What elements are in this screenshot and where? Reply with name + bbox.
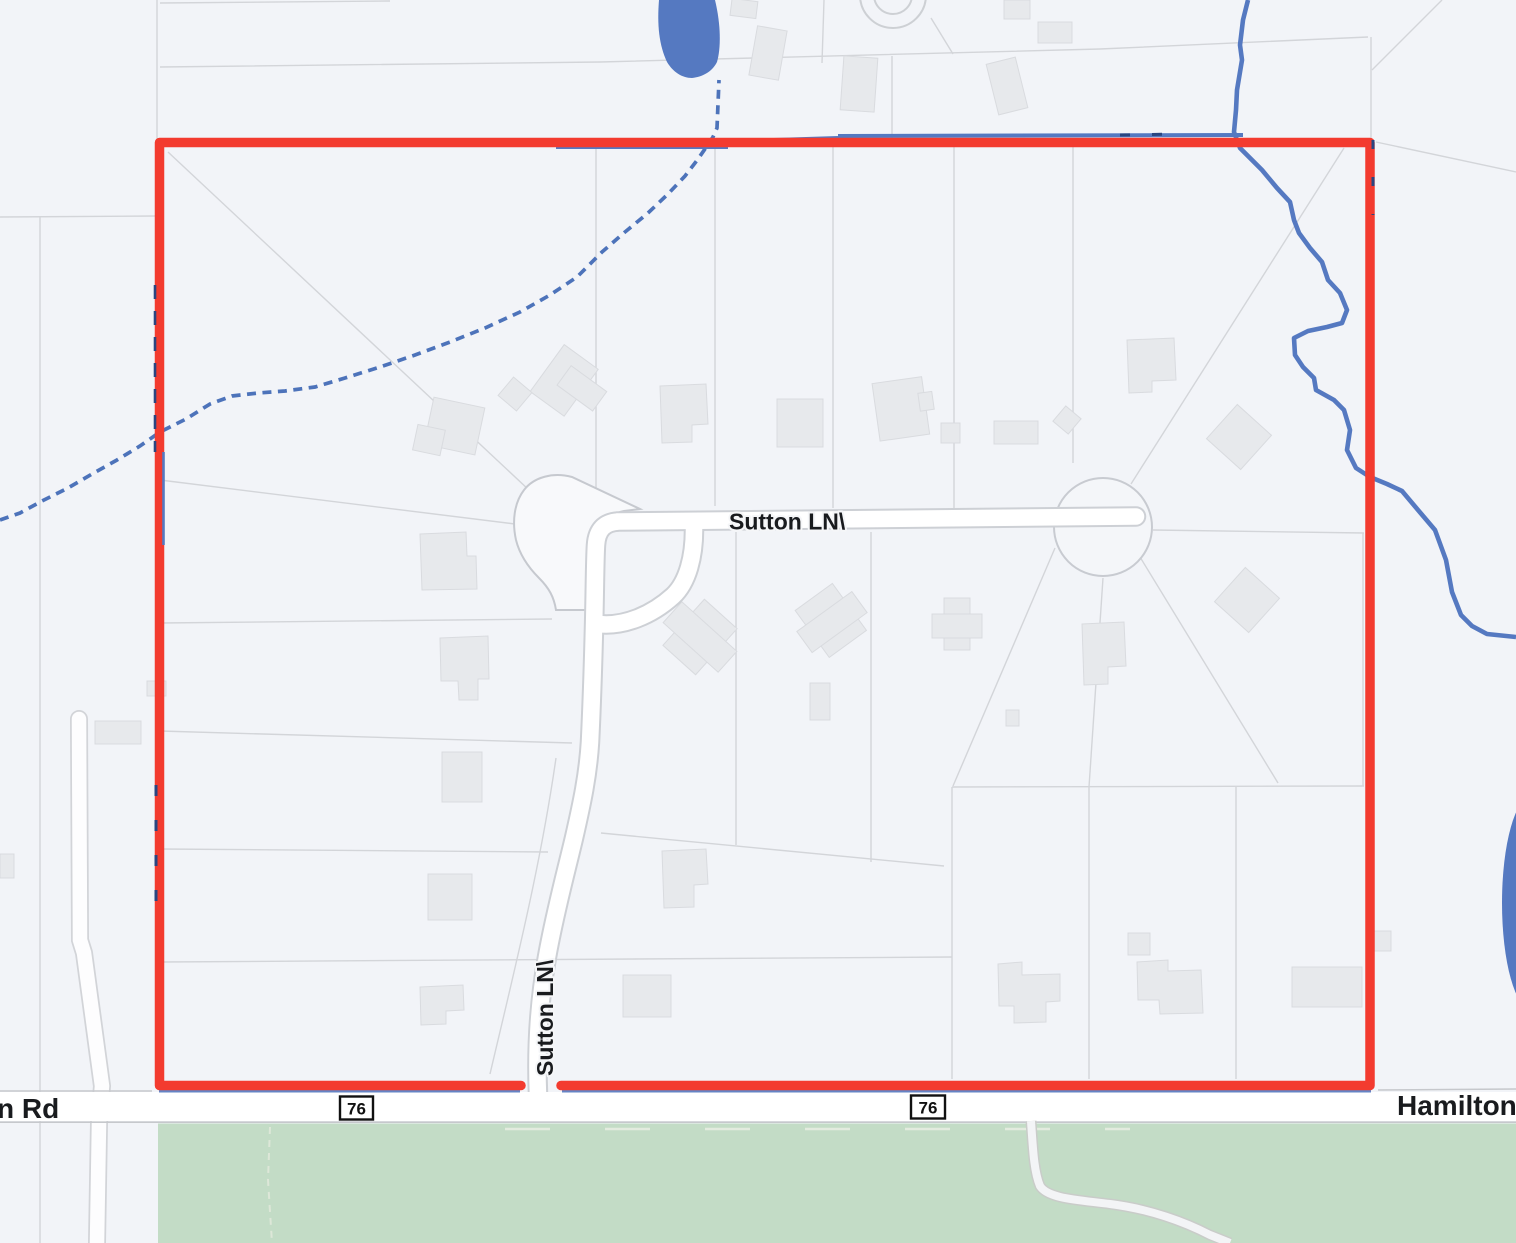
svg-text:Sutton LN\: Sutton LN\ <box>532 959 558 1076</box>
svg-text:76: 76 <box>347 1100 366 1119</box>
svg-text:76: 76 <box>919 1099 938 1118</box>
svg-text:n Rd: n Rd <box>0 1093 59 1124</box>
svg-text:Hamilton: Hamilton <box>1397 1090 1516 1121</box>
svg-text:Sutton LN\: Sutton LN\ <box>729 509 846 535</box>
